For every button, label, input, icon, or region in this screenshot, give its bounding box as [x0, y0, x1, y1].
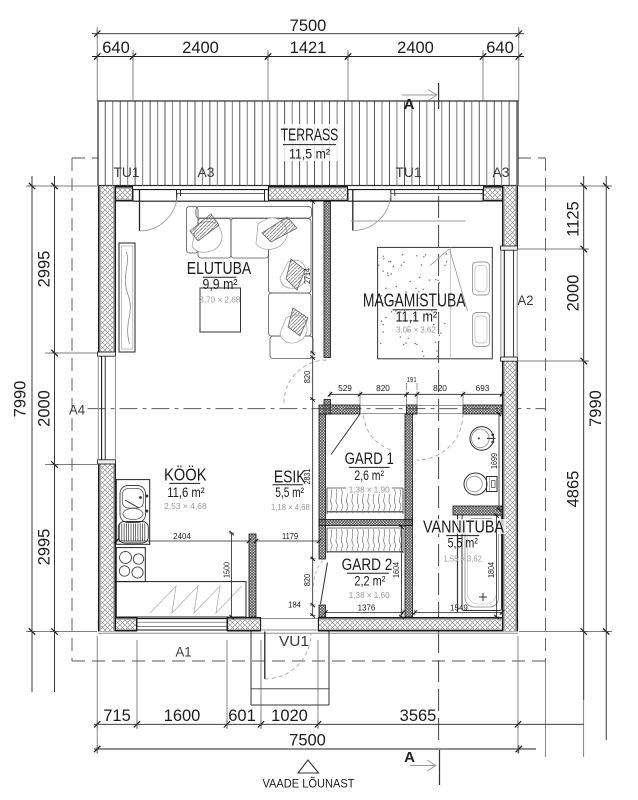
svg-text:1421: 1421: [290, 39, 327, 57]
svg-text:2,2 m²: 2,2 m²: [354, 572, 385, 588]
svg-text:2831: 2831: [303, 469, 312, 485]
svg-text:3565: 3565: [400, 707, 437, 725]
svg-text:1,38 × 1,90: 1,38 × 1,90: [349, 486, 390, 495]
svg-text:1,38 × 1,60: 1,38 × 1,60: [349, 591, 390, 600]
svg-text:820: 820: [303, 573, 312, 586]
svg-text:11,1 m²: 11,1 m²: [395, 309, 437, 325]
svg-text:1549: 1549: [450, 604, 468, 613]
svg-text:1,18 × 4,68: 1,18 × 4,68: [271, 503, 310, 512]
svg-text:1804: 1804: [487, 561, 496, 578]
svg-text:A: A: [404, 749, 415, 766]
svg-text:640: 640: [486, 39, 514, 57]
svg-text:1125: 1125: [565, 201, 583, 236]
svg-text:MAGAMISTUBA: MAGAMISTUBA: [363, 290, 466, 311]
svg-text:3,70 × 2,68: 3,70 × 2,68: [199, 295, 241, 304]
svg-text:2,6 m²: 2,6 m²: [354, 467, 384, 483]
svg-text:820: 820: [376, 384, 390, 393]
svg-text:2400: 2400: [182, 39, 219, 57]
svg-text:KÖÖK: KÖÖK: [164, 464, 207, 484]
svg-text:GARD 1: GARD 1: [345, 449, 394, 468]
svg-text:3,05 × 3,62: 3,05 × 3,62: [396, 326, 436, 335]
svg-text:4865: 4865: [565, 471, 583, 508]
svg-text:2400: 2400: [397, 39, 434, 57]
svg-text:1376: 1376: [358, 604, 376, 613]
svg-text:2995: 2995: [36, 251, 54, 288]
svg-text:1,55 × 3,62: 1,55 × 3,62: [444, 554, 483, 563]
svg-text:1600: 1600: [164, 707, 201, 725]
svg-text:7500: 7500: [290, 17, 327, 35]
svg-text:2404: 2404: [173, 532, 191, 541]
svg-text:A3: A3: [198, 165, 215, 180]
svg-text:TU1: TU1: [396, 165, 422, 180]
svg-text:5,5 m²: 5,5 m²: [275, 484, 304, 500]
svg-text:VU1: VU1: [279, 633, 309, 650]
svg-text:A2: A2: [518, 293, 534, 308]
svg-text:7990: 7990: [12, 381, 30, 418]
svg-text:TU1: TU1: [114, 165, 140, 180]
svg-text:191: 191: [407, 375, 417, 384]
svg-text:2000: 2000: [36, 390, 54, 427]
svg-text:820: 820: [303, 370, 312, 383]
svg-text:VAADE LÕUNAST: VAADE LÕUNAST: [263, 776, 356, 791]
svg-text:A4: A4: [69, 403, 85, 418]
svg-text:5,5 m²: 5,5 m²: [448, 535, 478, 551]
svg-text:7500: 7500: [289, 732, 326, 750]
svg-text:A1: A1: [176, 645, 192, 660]
svg-text:640: 640: [102, 39, 130, 57]
svg-text:1179: 1179: [282, 532, 298, 541]
svg-text:693: 693: [476, 384, 490, 393]
svg-text:11,6 m²: 11,6 m²: [167, 484, 205, 500]
svg-text:ELUTUBA: ELUTUBA: [187, 258, 252, 278]
svg-text:2,53 × 4,68: 2,53 × 4,68: [164, 502, 207, 511]
svg-text:2000: 2000: [565, 275, 583, 312]
svg-text:715: 715: [103, 707, 131, 725]
svg-text:A: A: [404, 96, 415, 113]
svg-text:529: 529: [338, 384, 352, 393]
svg-text:1699: 1699: [490, 453, 499, 469]
svg-text:1500: 1500: [223, 561, 232, 578]
svg-text:2995: 2995: [36, 529, 54, 566]
svg-text:TERRASS: TERRASS: [281, 125, 339, 145]
svg-text:1604: 1604: [392, 561, 401, 578]
svg-text:2714: 2714: [303, 267, 312, 284]
svg-text:VANNITUBA: VANNITUBA: [423, 516, 504, 536]
svg-text:601: 601: [228, 707, 256, 725]
svg-text:820: 820: [433, 384, 447, 393]
svg-text:GARD 2: GARD 2: [342, 555, 393, 574]
svg-text:184: 184: [288, 601, 302, 610]
svg-text:A3: A3: [493, 165, 510, 180]
svg-text:9,9 m²: 9,9 m²: [203, 277, 238, 293]
svg-text:1020: 1020: [271, 707, 308, 725]
svg-text:7990: 7990: [587, 390, 605, 427]
svg-text:11,5 m²: 11,5 m²: [289, 146, 330, 162]
